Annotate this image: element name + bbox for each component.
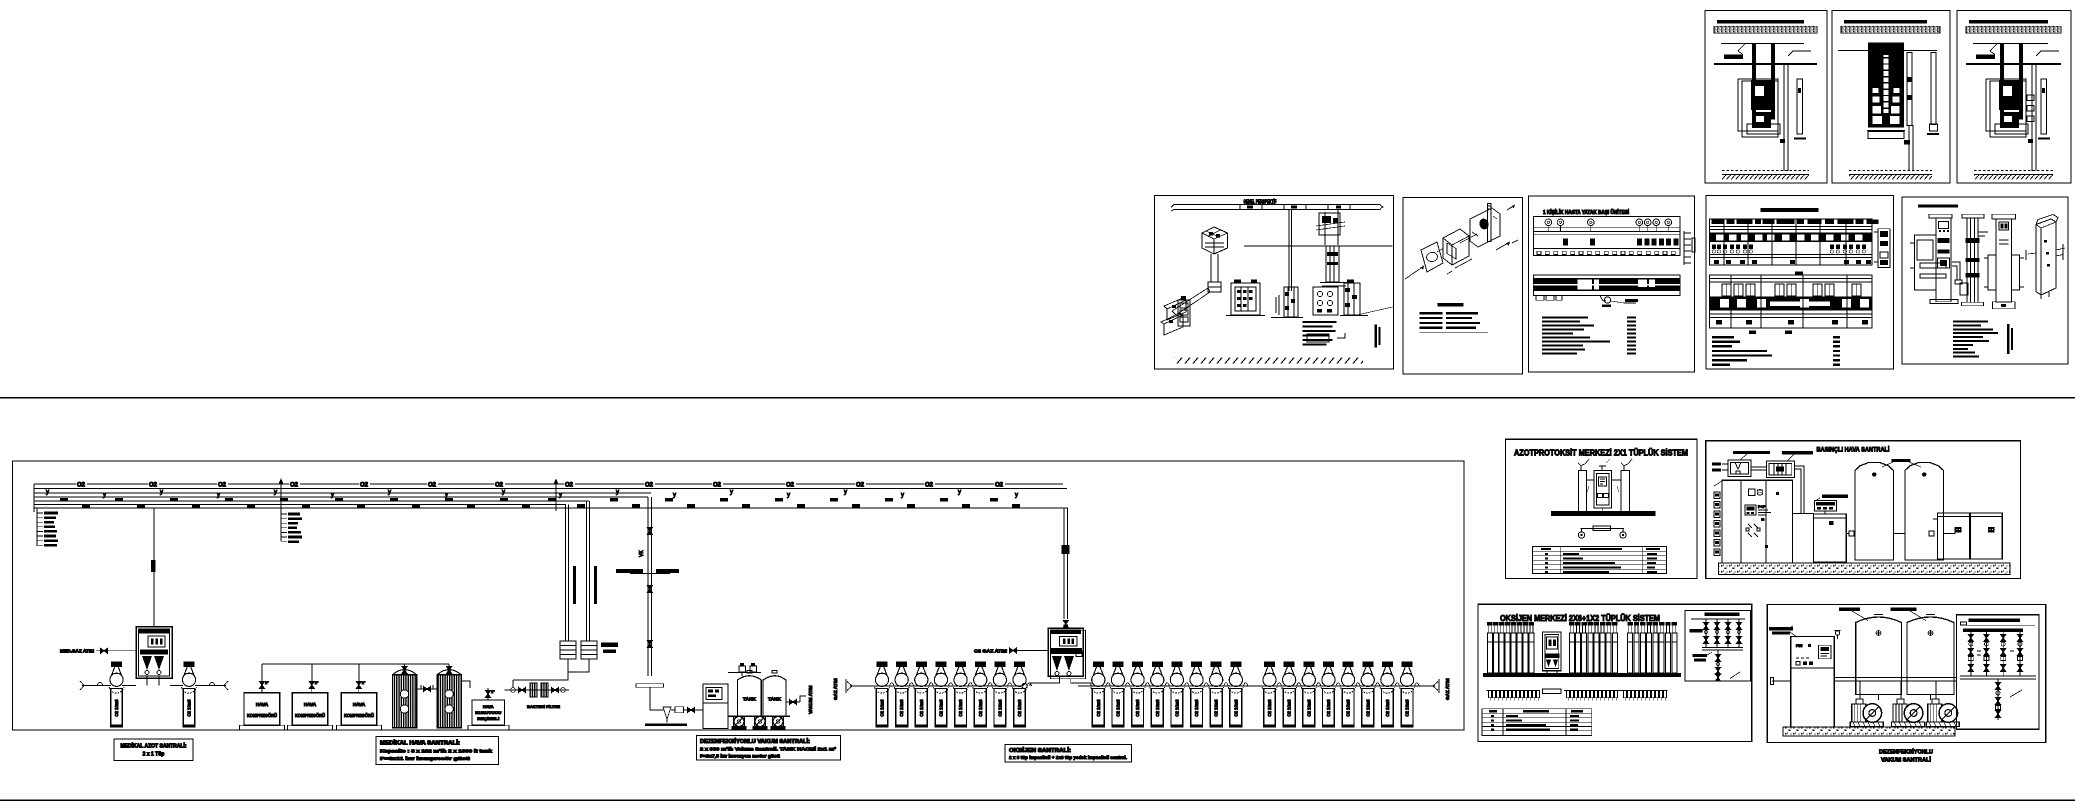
svg-text:BASINÇLI HAVA SANTRALİ: BASINÇLI HAVA SANTRALİ xyxy=(1817,446,1890,454)
svg-text:MED.GAZ ATIM: MED.GAZ ATIM xyxy=(60,649,94,654)
svg-text:P+P: P+P xyxy=(1758,505,1766,509)
svg-text:O2: O2 xyxy=(428,483,437,489)
svg-text:O2: O2 xyxy=(218,483,227,489)
svg-text:2 x 330 m³/h Vakum Santrali. T: 2 x 330 m³/h Vakum Santrali. TANK HACMİ … xyxy=(700,746,837,752)
svg-text:O2: O2 xyxy=(925,483,934,489)
svg-text:2": 2" xyxy=(315,680,319,685)
svg-text:y: y xyxy=(730,490,733,496)
svg-text:KURUTUCU: KURUTUCU xyxy=(475,710,501,715)
svg-text:VAKUM ATIM: VAKUM ATIM xyxy=(808,685,813,714)
svg-text:y: y xyxy=(616,490,619,496)
svg-text:O2: O2 xyxy=(149,483,158,489)
svg-text:O2: O2 xyxy=(995,483,1004,489)
svg-text:HAVA: HAVA xyxy=(483,704,494,709)
svg-text:DEZENFEKSİYONLU VAKUM SANTRALİ: DEZENFEKSİYONLU VAKUM SANTRALİ: xyxy=(700,738,810,745)
svg-text:y: y xyxy=(217,493,220,499)
svg-text:GAZ ATIM: GAZ ATIM xyxy=(1445,678,1450,700)
svg-text:DEZENFEKSİYONLU: DEZENFEKSİYONLU xyxy=(1879,749,1933,756)
svg-text:O2: O2 xyxy=(565,483,574,489)
svg-text:REÇİNELİ: REÇİNELİ xyxy=(477,716,499,721)
svg-text:OKSİJEN SANTRALİ:: OKSİJEN SANTRALİ: xyxy=(1009,747,1071,754)
svg-text:P=3x11 kw kompresör gücü: P=3x11 kw kompresör gücü xyxy=(380,756,470,761)
svg-text:OKSİJEN MERKEZİ 2X6+1X2 TÜPLÜK: OKSİJEN MERKEZİ 2X6+1X2 TÜPLÜK SİSTEM xyxy=(1500,613,1660,623)
svg-text:P55: P55 xyxy=(1796,644,1802,648)
svg-text:O2: O2 xyxy=(360,483,369,489)
svg-text:y: y xyxy=(1015,493,1018,499)
svg-text:O2: O2 xyxy=(645,483,654,489)
svg-text:O2: O2 xyxy=(77,483,86,489)
svg-text:AZOTPROTOKSİT MERKEZİ 2X1 TÜPL: AZOTPROTOKSİT MERKEZİ 2X1 TÜPLÜK SİSTEM xyxy=(1514,448,1688,458)
svg-text:KOMPRESÖRÜ: KOMPRESÖRÜ xyxy=(344,712,375,718)
svg-text:VAKUM SANTRALİ: VAKUM SANTRALİ xyxy=(1881,757,1931,764)
svg-text:O2 GAZ ATIM: O2 GAZ ATIM xyxy=(974,648,1007,653)
svg-text:Kapasite : 3 x 102 m³/h 2 x 10: Kapasite : 3 x 102 m³/h 2 x 1000 lt tank xyxy=(380,749,493,754)
svg-text:O2: O2 xyxy=(856,483,865,489)
svg-text:y: y xyxy=(388,490,391,496)
svg-text:A klimatizatörler: A klimatizatörler xyxy=(1783,451,1811,455)
svg-text:2": 2" xyxy=(265,680,269,685)
svg-text:y: y xyxy=(103,493,106,499)
svg-text:y: y xyxy=(331,493,334,499)
svg-text:HAVA: HAVA xyxy=(304,702,317,707)
svg-text:2 x 8 tüp kapasiteli + 1x8 tüp: 2 x 8 tüp kapasiteli + 1x8 tüp yedek kap… xyxy=(1009,755,1127,760)
svg-text:y: y xyxy=(445,493,448,499)
svg-text:O2: O2 xyxy=(290,483,299,489)
svg-text:TANK: TANK xyxy=(743,697,757,703)
svg-text:KOMPRESÖRÜ: KOMPRESÖRÜ xyxy=(295,712,326,718)
svg-text:y: y xyxy=(274,490,277,496)
svg-text:MEDİKAL AZOT SANTRALİ:: MEDİKAL AZOT SANTRALİ: xyxy=(121,743,187,750)
svg-text:2": 2" xyxy=(362,680,366,685)
svg-text:y: y xyxy=(46,490,49,496)
svg-text:KOMPRESÖRÜ: KOMPRESÖRÜ xyxy=(247,712,278,718)
svg-text:HAVA: HAVA xyxy=(256,702,269,707)
svg-text:y: y xyxy=(673,493,676,499)
svg-text:VK: VK xyxy=(639,550,645,557)
svg-text:HAVA: HAVA xyxy=(353,702,366,707)
svg-text:y: y xyxy=(958,490,961,496)
svg-text:y: y xyxy=(787,493,790,499)
svg-text:y: y xyxy=(901,493,904,499)
svg-text:y: y xyxy=(559,493,562,499)
svg-text:y: y xyxy=(160,490,163,496)
svg-text:MEDİKAL HAVA SANTRALİ:: MEDİKAL HAVA SANTRALİ: xyxy=(380,740,460,747)
svg-text:1 KİŞİLİK HASTA YATAK BAŞI ÜNİ: 1 KİŞİLİK HASTA YATAK BAŞI ÜNİTESİ xyxy=(1543,209,1630,216)
svg-text:P=2x7,5 kw korozyon motor gücü: P=2x7,5 kw korozyon motor gücü xyxy=(700,754,780,759)
svg-text:TANK: TANK xyxy=(768,697,782,703)
svg-text:2": 2" xyxy=(491,689,495,694)
svg-text:O2: O2 xyxy=(495,483,504,489)
svg-text:BAKTERİ FİLTRE: BAKTERİ FİLTRE xyxy=(527,704,560,709)
svg-text:O2: O2 xyxy=(713,483,722,489)
svg-text:y: y xyxy=(844,490,847,496)
svg-text:y: y xyxy=(502,490,505,496)
svg-text:2 x 1 Tüp: 2 x 1 Tüp xyxy=(143,752,165,758)
svg-text:O2: O2 xyxy=(786,483,795,489)
svg-text:GAZ ATIM: GAZ ATIM xyxy=(833,678,838,700)
